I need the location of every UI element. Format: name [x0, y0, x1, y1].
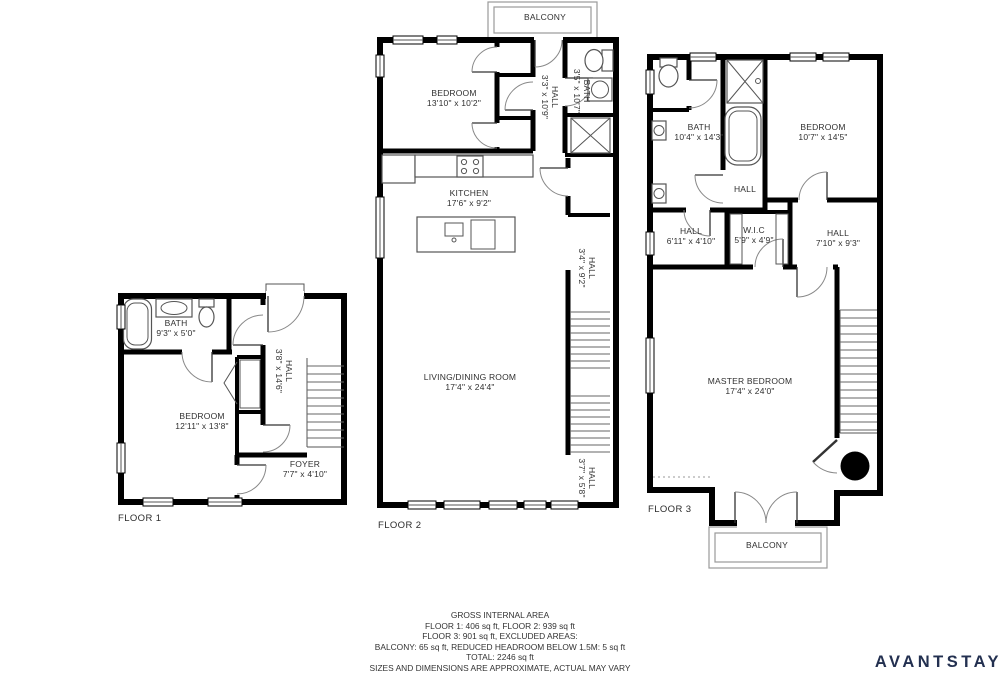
room-label-f1-bath: BATH9'3" x 5'0" — [156, 319, 195, 339]
room-label-f3-wic: W.I.C5'9" x 4'9" — [734, 226, 773, 246]
room-label-f2-hall-mid: HALL3'4" x 9'2" — [576, 248, 596, 287]
room-label-f1-bedroom: BEDROOM12'11" x 13'8" — [175, 412, 229, 432]
room-label-f3-bath: BATH10'4" x 14'3" — [674, 123, 723, 143]
floor2-tag: FLOOR 2 — [378, 520, 421, 531]
room-label-f3-bedroom: BEDROOM10'7" x 14'5" — [798, 123, 847, 143]
room-label-f2-kitchen: KITCHEN17'6" x 9'2" — [447, 189, 491, 209]
room-label-f2-hall-upper: HALL3'3" x 10'9" — [539, 75, 559, 119]
avantstay-logo: AVANTSTAY — [875, 653, 1000, 672]
floor1-plan — [110, 278, 355, 532]
room-label-f3-hall-right: HALL7'10" x 9'3" — [816, 229, 860, 249]
room-label-f2-bedroom: BEDROOM13'10" x 10'2" — [427, 89, 481, 109]
room-label-f3-hall-left: HALL6'11" x 4'10" — [667, 227, 716, 247]
floor3-tag: FLOOR 3 — [648, 504, 691, 515]
room-label-f2-bath: BATH3'5" x 10'7" — [571, 69, 591, 113]
area-summary: GROSS INTERNAL AREA FLOOR 1: 406 sq ft, … — [0, 610, 1000, 674]
room-label-f1-hall: HALL3'8" x 14'6" — [273, 349, 293, 393]
floor1-tag: FLOOR 1 — [118, 513, 161, 524]
room-label-f1-foyer: FOYER7'7" x 4'10" — [283, 460, 327, 480]
summary-line: GROSS INTERNAL AREA — [0, 610, 1000, 621]
summary-line: FLOOR 3: 901 sq ft, EXCLUDED AREAS: — [0, 631, 1000, 642]
summary-disclaimer: SIZES AND DIMENSIONS ARE APPROXIMATE, AC… — [0, 663, 1000, 674]
room-label-f2-hall-lower: HALL3'7" x 5'8" — [576, 458, 596, 497]
summary-line: BALCONY: 65 sq ft, REDUCED HEADROOM BELO… — [0, 642, 1000, 653]
summary-line: FLOOR 1: 406 sq ft, FLOOR 2: 939 sq ft — [0, 621, 1000, 632]
summary-line: TOTAL: 2246 sq ft — [0, 652, 1000, 663]
no-entry-icon — [841, 452, 870, 481]
room-label-f3-master: MASTER BEDROOM17'4" x 24'0" — [708, 377, 793, 397]
room-label-f2-living: LIVING/DINING ROOM17'4" x 24'4" — [424, 373, 516, 393]
room-label-f2-balcony: BALCONY — [524, 13, 566, 23]
room-label-f3-balcony: BALCONY — [746, 541, 788, 551]
room-label-f3-hall-center: HALL — [734, 185, 756, 195]
